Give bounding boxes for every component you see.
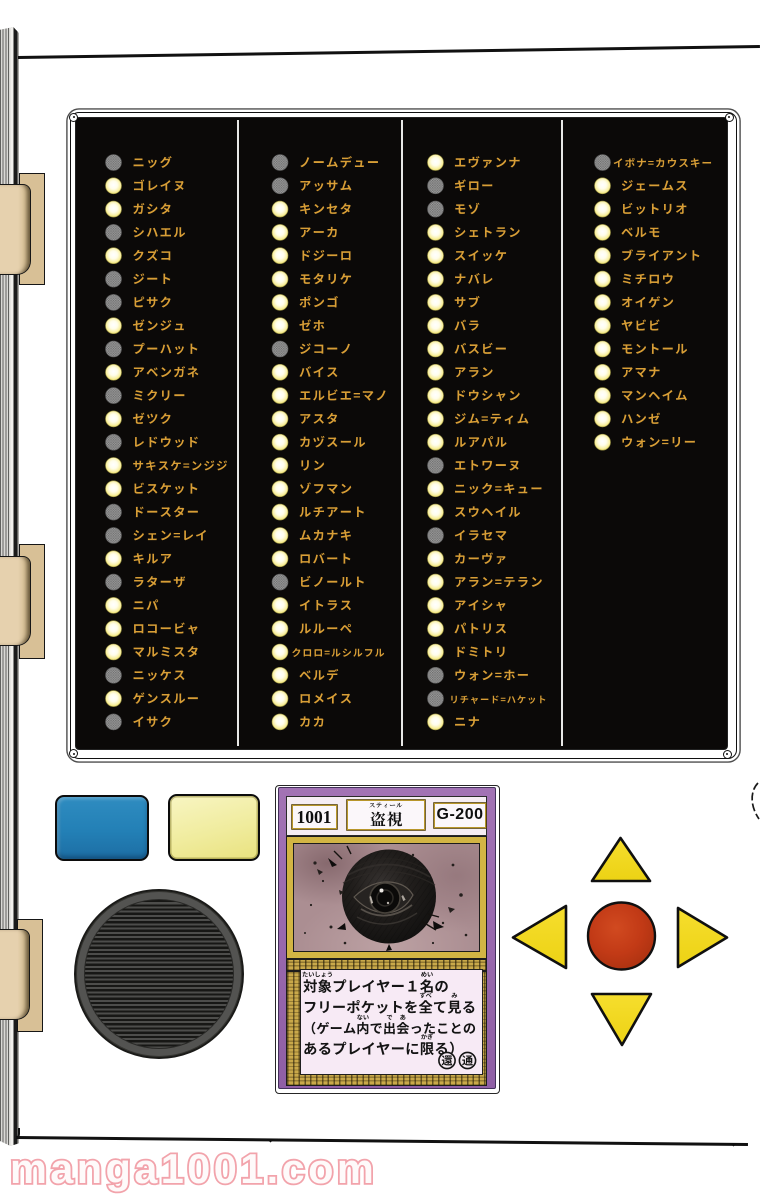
svg-text:manga1001.com: manga1001.com: [10, 1145, 377, 1192]
